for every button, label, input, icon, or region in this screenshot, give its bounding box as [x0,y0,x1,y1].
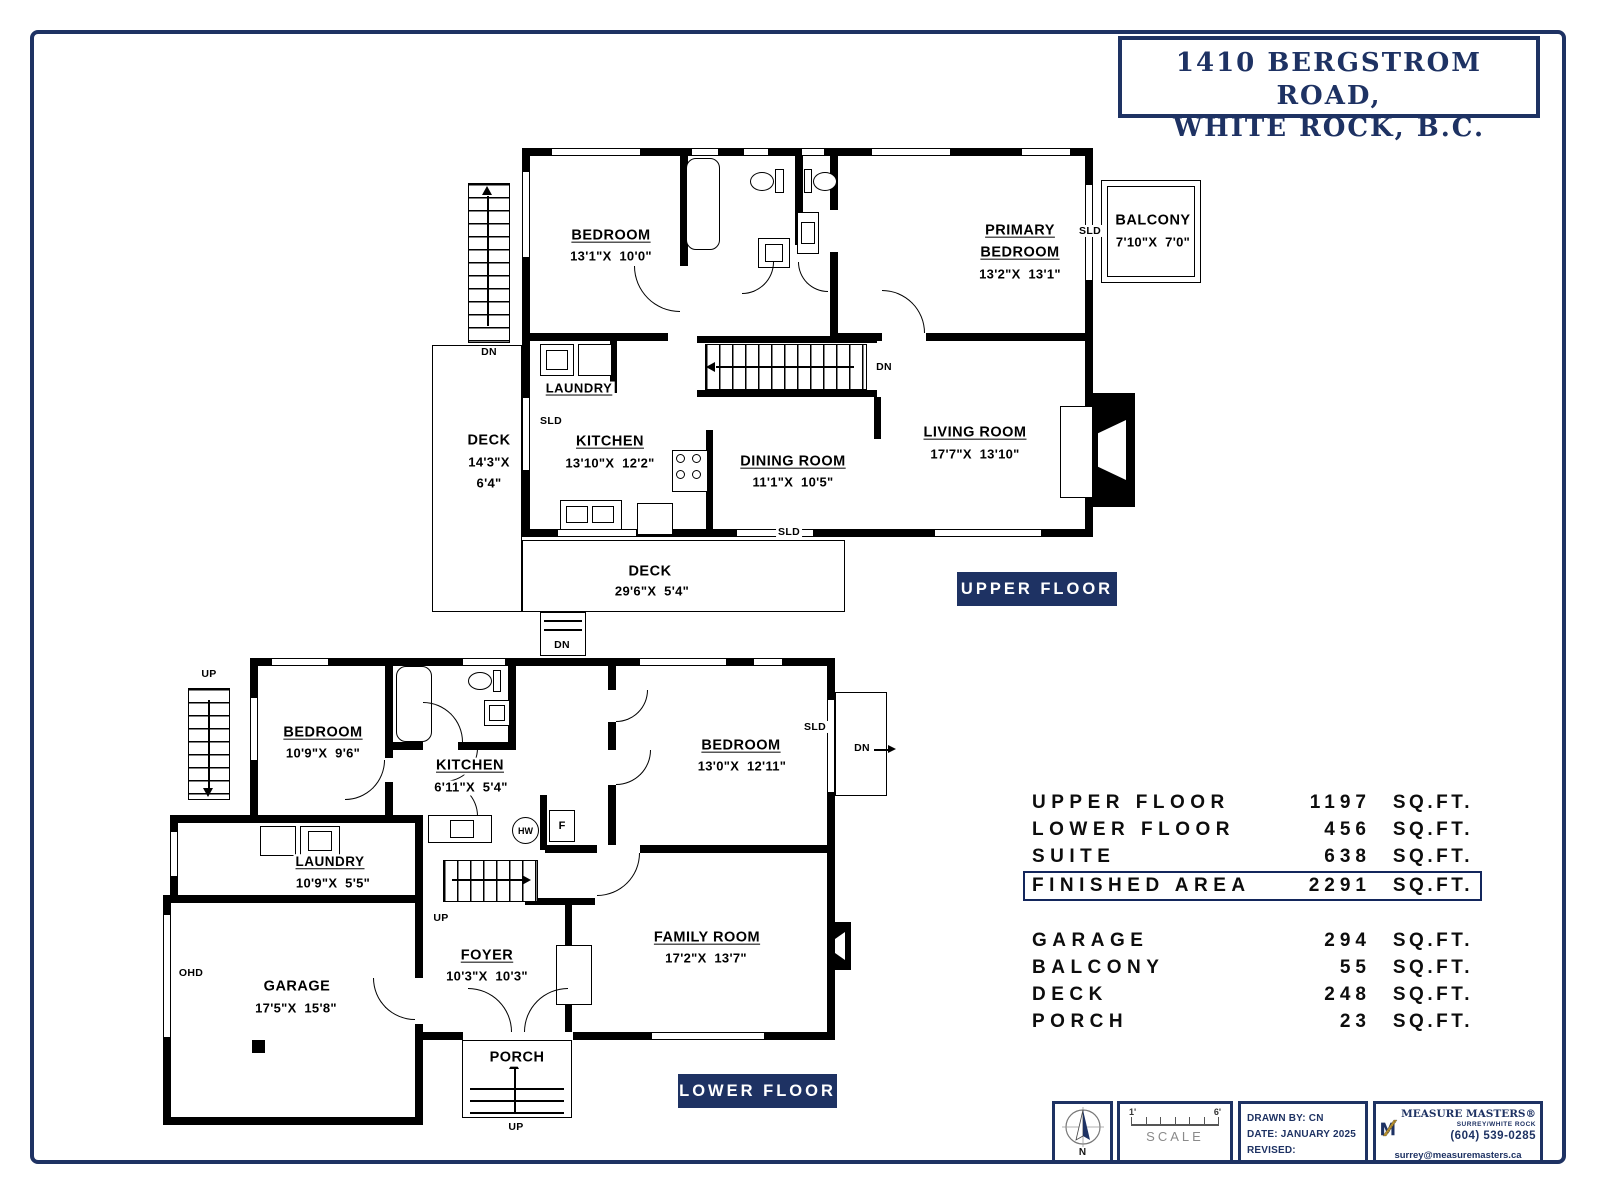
deck-stair-tread [544,620,582,622]
area-value: 248 [1253,984,1371,1006]
room-label-suite-laundry: LAUNDRY [294,854,367,870]
room-dims-balcony: 7'10"X 7'0" [1114,236,1192,251]
lower-floor-tag: LOWER FLOOR [678,1074,837,1108]
area-label: PORCH [1032,1011,1253,1033]
dn-label: DN [479,346,499,358]
area-label: SUITE [1032,846,1253,868]
ohd-label: OHD [177,967,205,979]
overhead-garage-door [163,915,171,1037]
arrow-right-icon [522,875,531,885]
room-dims-family: 17'2"X 13'7" [663,952,749,967]
up-label: UP [199,668,218,680]
area-label: DECK [1032,984,1253,1006]
company-email: surrey@measuremasters.ca [1380,1150,1536,1161]
hot-water-tank-icon: HW [512,817,539,844]
table-row: PORCH 23 SQ.FT. [1032,1008,1473,1035]
toilet-tank [775,169,784,193]
wall [697,390,877,397]
date-text: DATE: JANUARY 2025 [1247,1127,1359,1143]
area-unit: SQ.FT. [1371,930,1473,952]
burner [676,454,685,463]
arrow-up-icon [482,186,492,195]
burner [692,454,701,463]
room-dims-bedroom2: 13'0"X 12'11" [696,760,789,775]
washer-icon [260,826,296,856]
drawn-by-text: DRAWN BY: CN [1247,1111,1359,1127]
hearth [1060,406,1093,498]
area-value: 2291 [1253,875,1371,897]
room-label-bedroom2: BEDROOM [699,738,782,755]
window [802,148,824,156]
wall [608,722,616,750]
room-dims-deck-bottom: 29'6"X 5'4" [613,585,691,600]
scale-label: SCALE [1120,1129,1230,1144]
area-value: 1197 [1253,792,1371,814]
window [522,172,530,257]
room-label-balcony: BALCONY [1113,213,1192,230]
room-label-living: LIVING ROOM [922,425,1029,442]
area-value: 456 [1253,819,1371,841]
dn-label: DN [874,361,894,373]
wall [540,795,547,850]
area-summary-table: UPPER FLOOR 1197 SQ.FT. LOWER FLOOR 456 … [1032,789,1473,1035]
door-opening [415,978,423,1024]
area-value: 55 [1253,957,1371,979]
table-row: SUITE 638 SQ.FT. [1032,843,1473,870]
sink-basin [450,820,474,838]
wall [423,1032,468,1040]
sliding-door [522,398,530,470]
dryer-drum [308,831,332,851]
arrow-left-icon [706,362,715,372]
toilet-icon [750,172,774,191]
area-value: 638 [1253,846,1371,868]
sink-basin [489,705,505,721]
table-row: LOWER FLOOR 456 SQ.FT. [1032,816,1473,843]
wall [608,785,616,845]
compass-box: N [1052,1101,1113,1163]
company-box: MEASURE MASTERS® SURREY/WHITE ROCK (604)… [1373,1101,1543,1163]
sink-basin [801,222,815,244]
window [754,658,782,666]
room-dims-deck-side-1: 14'3"X [466,456,511,471]
window [463,658,505,666]
balcony-inner-line [1107,186,1195,277]
sld-label: SLD [776,526,802,538]
washer-drum [546,350,568,370]
room-dims-primary: 13'2"X 13'1" [977,268,1063,283]
window [170,832,178,876]
company-name: MEASURE MASTERS® [1401,1108,1536,1120]
stair-arrow-line [716,366,854,368]
area-unit: SQ.FT. [1371,875,1473,897]
sink-basin [592,506,614,523]
north-label: N [1055,1147,1110,1158]
upper-floor-tag: UPPER FLOOR [957,572,1117,606]
area-value: 23 [1253,1011,1371,1033]
room-dims-living: 17'7"X 13'10" [928,448,1021,463]
sliding-door [827,700,835,792]
room-label-foyer: FOYER [459,948,515,965]
room-label-deck-side: DECK [465,433,512,450]
wall [385,782,393,822]
room-dims-bedroom: 13'1"X 10'0" [568,250,654,265]
fridge-icon [637,503,673,535]
room-dims-kitchen: 13'10"X 12'2" [563,457,656,472]
window [250,698,258,760]
room-dims-garage: 17'5"X 15'8" [253,1002,339,1017]
stair-arrow-line [514,1068,516,1114]
area-unit: SQ.FT. [1371,1011,1473,1033]
address-title-box: 1410 BERGSTROM ROAD, WHITE ROCK, B.C. [1118,36,1540,118]
room-label-primary-2: BEDROOM [978,245,1061,262]
wall [250,658,835,666]
room-dims-bedroom1: 10'9"X 9'6" [284,747,362,762]
area-label: LOWER FLOOR [1032,819,1253,841]
burner [692,470,701,479]
upper-exterior-stairs [468,183,510,343]
table-spacer [1032,902,1473,927]
room-label-bedroom1: BEDROOM [281,725,364,742]
area-unit: SQ.FT. [1371,846,1473,868]
scale-tick-labels: 1' 6' [1129,1107,1221,1117]
deck-stair-tread [544,629,582,631]
dn-label: DN [852,742,872,754]
toilet-tank [804,169,812,193]
window [652,1032,764,1040]
measure-masters-logo-icon [1380,1107,1398,1149]
window [744,148,768,156]
room-label-deck-bottom: DECK [626,564,673,581]
furnace-icon: F [549,810,575,842]
wall [926,333,1093,341]
room-label-bedroom: BEDROOM [569,228,652,245]
room-label-suite-kitchen: KITCHEN [434,758,506,775]
wall [608,658,616,690]
wall [522,333,668,341]
area-unit: SQ.FT. [1371,957,1473,979]
window [640,658,726,666]
scale-box: 1' 6' SCALE [1117,1101,1233,1163]
address-line-1: 1410 BERGSTROM ROAD, [1122,47,1536,112]
room-dims-deck-side-2: 6'4" [475,477,504,492]
room-label-family: FAMILY ROOM [652,930,762,947]
window [558,529,636,537]
toilet-tank [493,670,501,692]
area-label: UPPER FLOOR [1032,792,1253,814]
area-label: FINISHED AREA [1032,875,1253,897]
window [1022,148,1070,156]
arrow-down-icon [203,788,213,797]
wall [385,742,423,750]
stair-arrow-line [487,196,489,326]
table-row: BALCONY 55 SQ.FT. [1032,954,1473,981]
stair-arrow-line [874,749,888,751]
table-row: UPPER FLOOR 1197 SQ.FT. [1032,789,1473,816]
wall [838,333,882,341]
arrow-right-icon [888,745,896,753]
address-line-2: WHITE ROCK, B.C. [1122,112,1536,145]
room-label-garage: GARAGE [262,979,333,996]
window [872,148,950,156]
door-opening [463,1032,573,1040]
area-unit: SQ.FT. [1371,792,1473,814]
garage-post [252,1040,265,1053]
sink-basin [765,244,783,262]
scale-ruler-icon [1131,1117,1219,1126]
area-value: 294 [1253,930,1371,952]
stair-arrow-line [208,700,210,788]
sink-basin [566,506,588,523]
wall [830,252,838,341]
revised-text: REVISED: [1247,1143,1359,1159]
table-row: DECK 248 SQ.FT. [1032,981,1473,1008]
sld-label: SLD [538,415,564,427]
stair-arrow-line [452,879,522,881]
dryer-icon [578,344,612,376]
room-label-kitchen: KITCHEN [574,434,646,451]
upper-bottom-deck-outline [522,540,845,612]
window [935,529,1041,537]
porch-step [470,1088,564,1090]
toilet-icon [813,172,837,191]
room-dims-dining: 11'1"X 10'5" [751,476,836,491]
sld-label: SLD [802,721,828,733]
wall [640,845,835,853]
company-phone: (604) 539-0285 [1401,1130,1536,1142]
company-region: SURREY/WHITE ROCK [1401,1121,1536,1128]
burner [676,470,685,479]
scale-start-label: 1' [1129,1107,1136,1117]
dn-label: DN [552,639,572,651]
window [272,658,328,666]
room-dims-suite-laundry: 10'9"X 5'5" [294,877,372,892]
room-label-primary-1: PRIMARY [983,223,1057,240]
room-label-dining: DINING ROOM [738,454,847,471]
up-label: UP [506,1121,525,1133]
up-label: UP [431,912,450,924]
table-row-finished-area: FINISHED AREA 2291 SQ.FT. [1023,871,1482,901]
room-label-porch: PORCH [488,1050,547,1067]
room-label-laundry: LAUNDRY [544,382,615,397]
compass-icon [1062,1106,1104,1148]
room-dims-foyer: 10'3"X 10'3" [444,970,530,985]
table-row: GARAGE 294 SQ.FT. [1032,927,1473,954]
area-label: BALCONY [1032,957,1253,979]
area-label: GARAGE [1032,930,1253,952]
floor-plan-page: 1410 BERGSTROM ROAD, WHITE ROCK, B.C. [0,0,1600,1200]
toilet-icon [468,672,492,690]
window [692,148,718,156]
porch-step [470,1100,564,1102]
drawing-info-box: DRAWN BY: CN DATE: JANUARY 2025 REVISED: [1238,1101,1368,1163]
area-unit: SQ.FT. [1371,819,1473,841]
wall [565,905,572,945]
area-unit: SQ.FT. [1371,984,1473,1006]
wall [545,845,597,853]
sld-label: SLD [1077,225,1103,237]
bathtub-icon [686,158,720,250]
scale-end-label: 6' [1214,1107,1221,1117]
porch-step [470,1112,564,1114]
room-dims-suite-kitchen: 6'11"X 5'4" [432,781,509,796]
wall [874,397,881,439]
window [552,148,640,156]
